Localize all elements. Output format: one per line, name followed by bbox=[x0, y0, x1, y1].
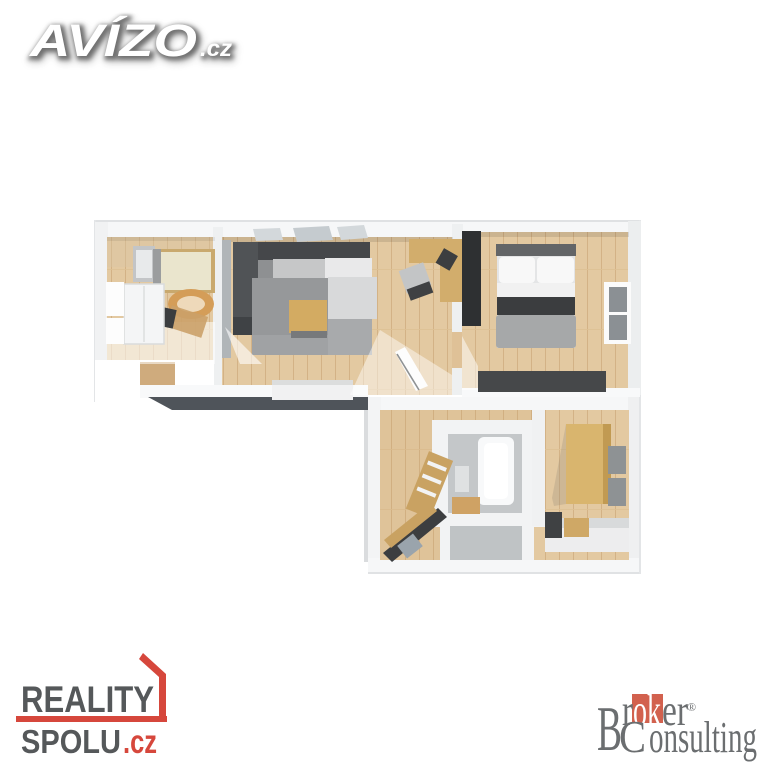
svg-text:.cz: .cz bbox=[123, 723, 157, 760]
svg-text:onsulting: onsulting bbox=[649, 713, 757, 762]
svg-text:®: ® bbox=[687, 700, 696, 714]
svg-text:.cz: .cz bbox=[200, 35, 233, 61]
svg-text:AVÍZO: AVÍZO bbox=[29, 15, 197, 66]
svg-text:C: C bbox=[619, 711, 646, 762]
svg-text:SPOLU: SPOLU bbox=[21, 723, 121, 760]
svg-text:REALITY: REALITY bbox=[21, 679, 154, 720]
